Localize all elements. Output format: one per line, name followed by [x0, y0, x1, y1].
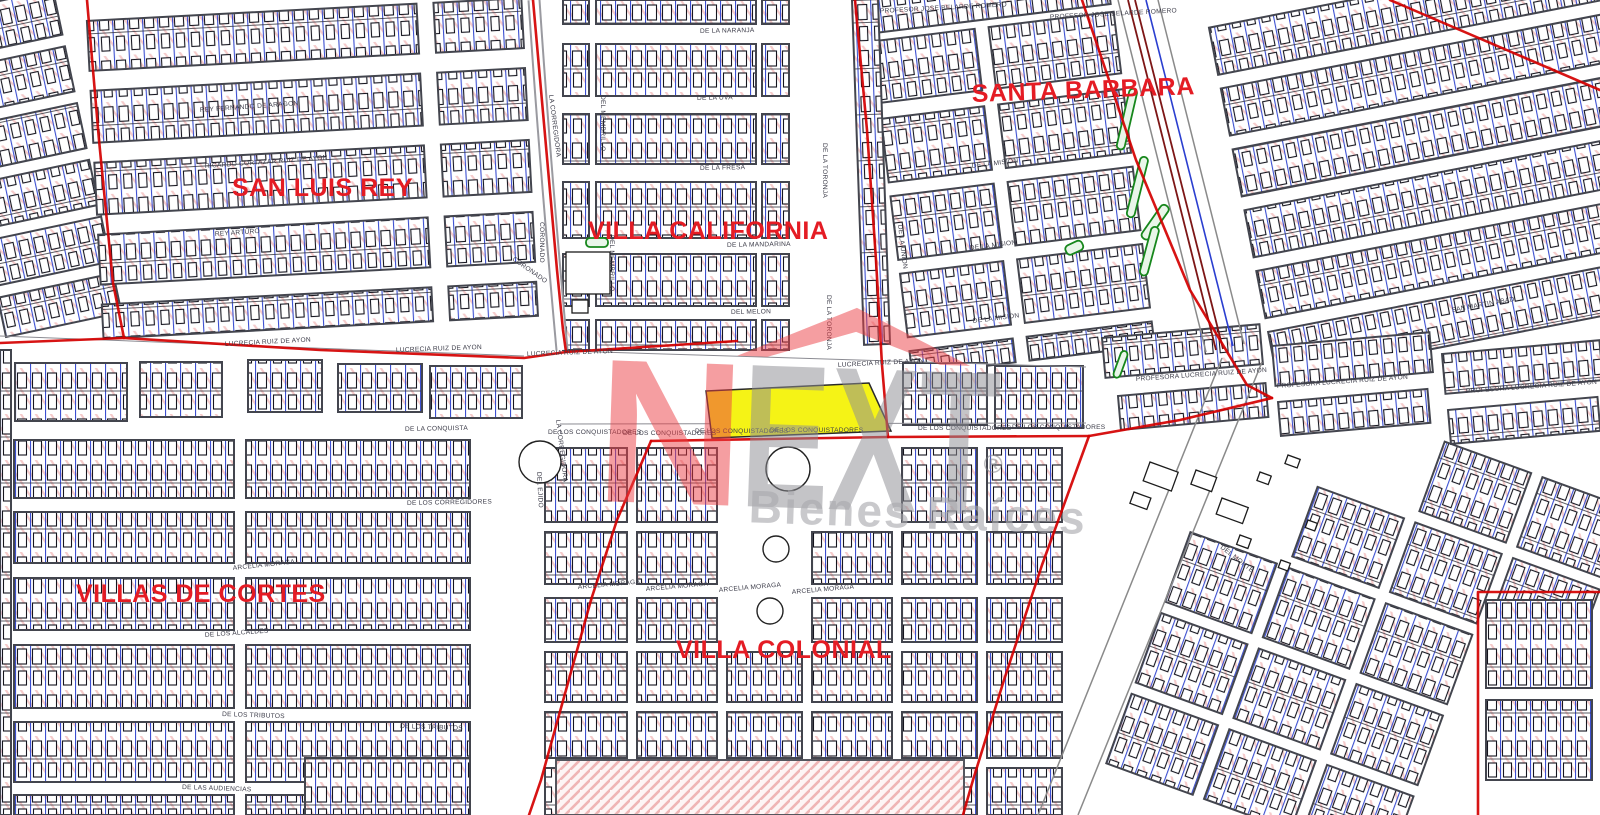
city-block: [15, 363, 127, 421]
city-block: [14, 440, 234, 498]
street-label: DE LOS CORREGIDORES: [407, 499, 492, 507]
building: [1191, 470, 1217, 492]
city-block: [14, 795, 234, 815]
city-block: [596, 254, 756, 306]
street-label: DE LAS AUDIENCIAS: [182, 784, 252, 793]
street-label: DE LA TORONJA: [821, 143, 828, 198]
building: [1143, 462, 1178, 491]
city-block: [441, 140, 532, 197]
city-block: [902, 712, 977, 758]
city-block: [596, 44, 756, 96]
city-block: [1278, 389, 1430, 436]
hatched-area: [556, 760, 964, 815]
watermark-letter-n: N: [593, 316, 749, 550]
city-block: [98, 217, 430, 284]
building: [1216, 498, 1248, 524]
city-block: [102, 287, 433, 338]
city-block: [637, 712, 717, 758]
street-label: DE LA FRESA: [700, 164, 746, 172]
street-label: DE LOS CONQUISTADORES: [1012, 424, 1106, 431]
street-label: DEL MELON: [731, 308, 771, 316]
city-block: [596, 0, 756, 24]
city-block: [596, 114, 756, 164]
city-block: [762, 254, 789, 306]
street-label: DE LOS TRIBUTOS: [222, 711, 285, 720]
building: [1257, 472, 1271, 485]
city-block: [881, 106, 992, 182]
street-label: DE LA CONQUISTA: [405, 425, 468, 433]
district-label-villas-de-cortes: VILLAS DE CORTES: [76, 580, 326, 608]
city-block: [762, 0, 789, 24]
city-block: [987, 768, 1062, 815]
building: [1237, 535, 1252, 549]
city-block: [0, 217, 111, 287]
city-block: [338, 364, 422, 412]
district-label-villa-california: VILLA CALIFORNIA: [588, 217, 828, 245]
city-block: [0, 160, 99, 230]
city-block: [1008, 167, 1141, 246]
city-block: [1486, 700, 1592, 780]
city-block: [1292, 487, 1404, 588]
building: [566, 252, 610, 294]
city-block: [871, 29, 982, 103]
city-block: [987, 712, 1062, 758]
city-block: [1331, 684, 1443, 785]
city-block: [727, 712, 802, 758]
city-block: [430, 366, 522, 418]
district-label-san-luis-rey: SAN LUIS REY: [232, 174, 413, 202]
city-block: [1486, 600, 1592, 688]
city-block: [762, 44, 789, 96]
city-block: [812, 712, 892, 758]
city-block: [762, 114, 789, 164]
roundabout: [757, 598, 783, 624]
building: [1285, 455, 1300, 468]
city-block: [0, 350, 11, 815]
street-label: DEL EJIDO: [535, 472, 544, 508]
city-block: [448, 282, 538, 321]
city-block: [445, 212, 535, 267]
parcel-map: REY FERNANDO DE ARAGONRICARDO CORTAZAR R…: [0, 0, 1600, 815]
city-block: [902, 598, 977, 642]
city-block: [14, 512, 234, 563]
street-label: ARCELIA MORAGA: [719, 582, 782, 594]
street-label: ARCELIA MORAGA: [792, 584, 855, 596]
city-block: [1136, 613, 1248, 714]
city-block: [1419, 442, 1531, 543]
city-block: [1017, 244, 1150, 323]
city-block: [246, 440, 470, 498]
city-block: [140, 362, 222, 417]
building: [1130, 492, 1151, 509]
block-grid: [871, 12, 1154, 375]
parcel-map-page: REY FERNANDO DE ARAGONRICARDO CORTAZAR R…: [0, 0, 1600, 815]
building: [1278, 560, 1290, 571]
city-block: [900, 261, 1011, 337]
city-block: [1106, 694, 1218, 795]
block-grid: [87, 0, 538, 339]
city-block: [87, 4, 419, 71]
street-label: CORONADO: [538, 222, 545, 263]
city-block: [995, 366, 1083, 428]
street-label: DE LA NARANJA: [700, 27, 755, 35]
city-block: [902, 652, 977, 702]
city-block: [1118, 383, 1268, 430]
city-block: [1361, 603, 1473, 704]
district-label-villa-colonial: VILLA COLONIAL: [676, 636, 892, 664]
city-block: [437, 68, 528, 125]
street-label: LUCRECIA RUIZ DE AYON: [396, 344, 482, 354]
city-block: [433, 0, 523, 53]
watermark-registered-icon: ®: [983, 448, 1003, 479]
block-grid: [1209, 0, 1600, 379]
city-block: [305, 758, 470, 815]
block-grid: [563, 0, 789, 350]
city-block: [545, 652, 627, 702]
city-block: [246, 645, 470, 708]
city-block: [1263, 568, 1375, 669]
city-block: [1448, 397, 1600, 444]
city-block: [246, 512, 470, 563]
city-block: [563, 44, 589, 96]
building: [572, 300, 588, 313]
street-label: DE LA UVA: [697, 94, 733, 102]
city-block: [563, 182, 589, 238]
city-block: [14, 645, 234, 708]
city-block: [563, 0, 589, 24]
city-block: [1390, 522, 1502, 623]
city-block: [1233, 649, 1345, 750]
street-label: DEL MEMBRILLO: [599, 95, 606, 152]
city-block: [563, 114, 589, 164]
city-block: [14, 722, 234, 782]
city-block: [248, 360, 322, 412]
